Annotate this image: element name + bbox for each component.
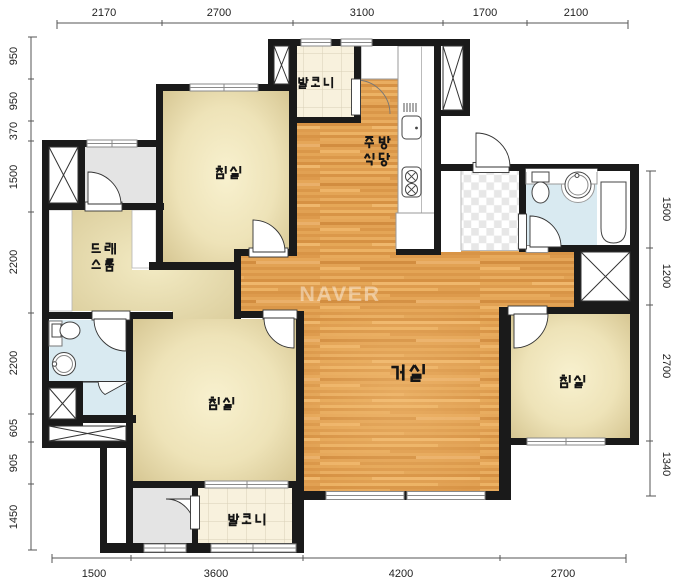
svg-text:1200: 1200 (660, 264, 672, 288)
svg-text:2170: 2170 (92, 7, 116, 19)
svg-text:1500: 1500 (660, 197, 672, 221)
svg-text:1500: 1500 (8, 165, 20, 189)
svg-text:2200: 2200 (8, 351, 20, 375)
svg-text:2700: 2700 (660, 354, 672, 378)
svg-text:2700: 2700 (551, 568, 575, 580)
svg-text:2700: 2700 (207, 7, 231, 19)
svg-text:370: 370 (8, 122, 20, 140)
svg-text:950: 950 (8, 47, 20, 65)
svg-text:NAVER: NAVER (299, 282, 380, 306)
svg-text:950: 950 (8, 92, 20, 110)
svg-text:3600: 3600 (204, 568, 228, 580)
svg-text:605: 605 (8, 419, 20, 437)
svg-text:1500: 1500 (82, 568, 106, 580)
svg-text:1700: 1700 (473, 7, 497, 19)
svg-text:2100: 2100 (564, 7, 588, 19)
svg-text:1450: 1450 (8, 505, 20, 529)
svg-text:1340: 1340 (660, 452, 672, 476)
svg-text:4200: 4200 (389, 568, 413, 580)
svg-text:905: 905 (8, 454, 20, 472)
svg-text:3100: 3100 (350, 7, 374, 19)
svg-text:2200: 2200 (8, 250, 20, 274)
